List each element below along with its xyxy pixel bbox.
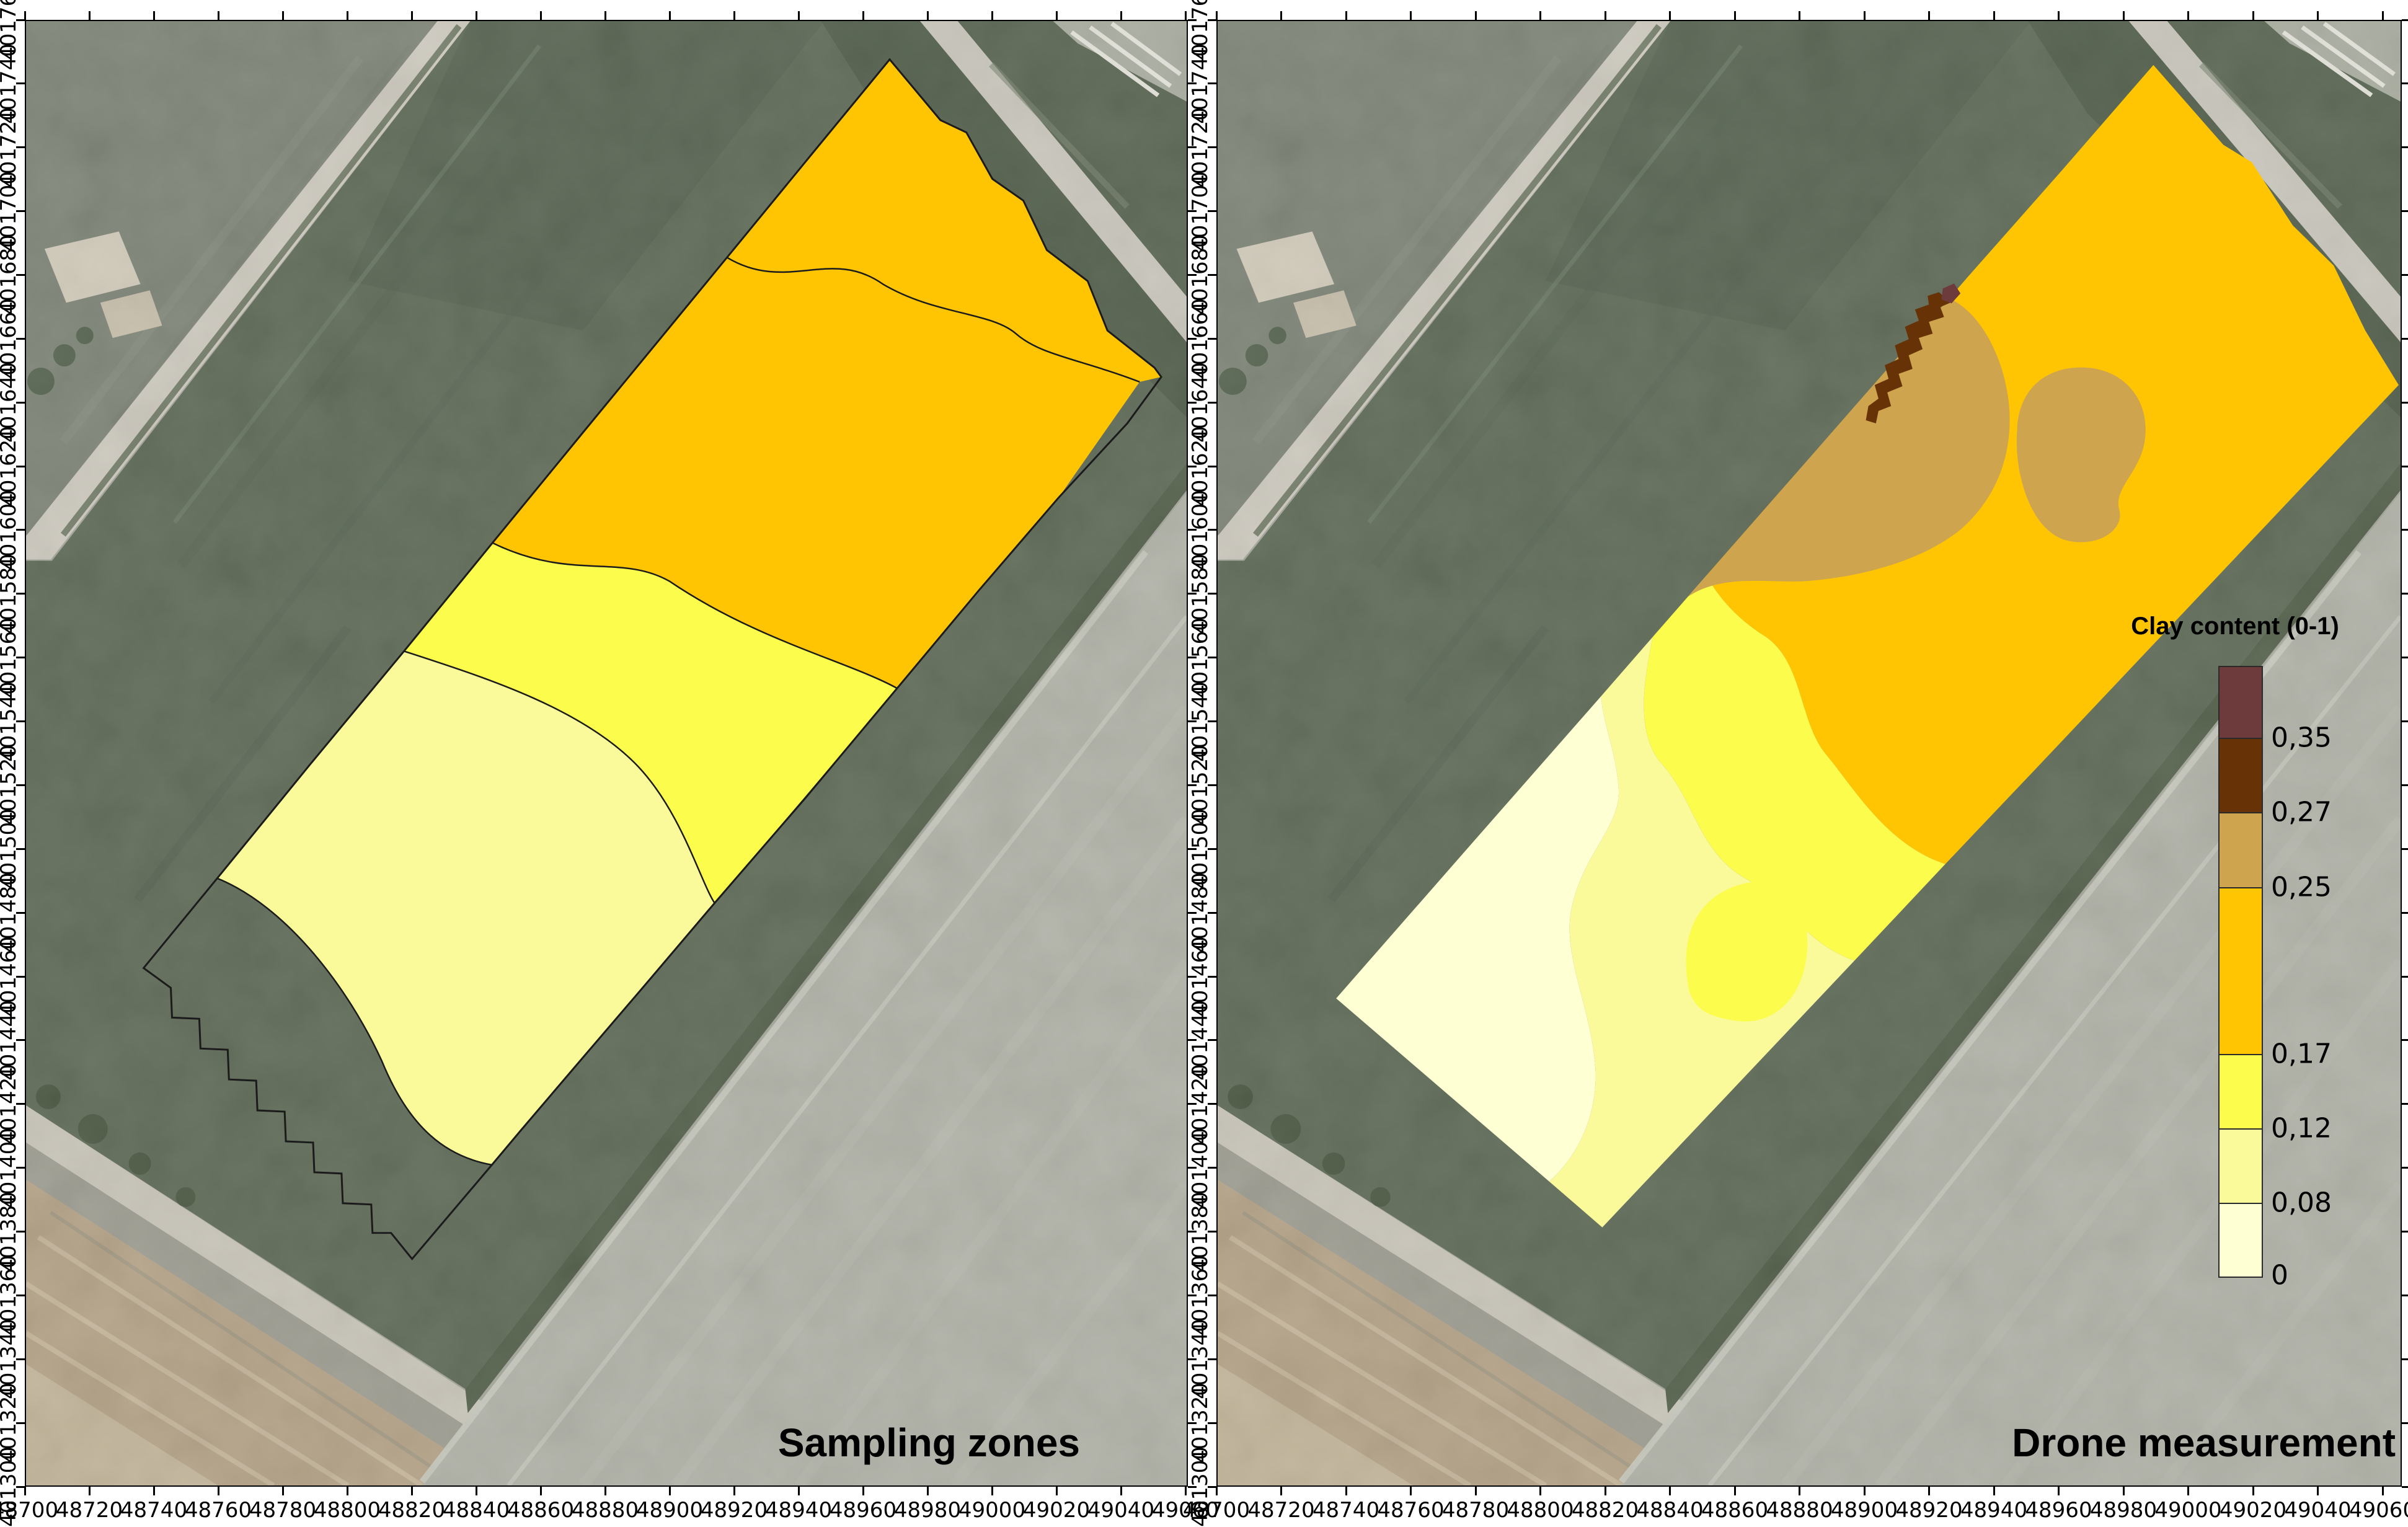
x-tick — [2123, 1487, 2125, 1495]
x-tick — [733, 1487, 735, 1495]
x-tick — [218, 1487, 219, 1495]
x-tick — [733, 11, 735, 20]
y-tick — [2402, 784, 2408, 786]
x-tick-label: 49040 — [2284, 1498, 2351, 1523]
x-tick — [927, 11, 929, 20]
sampling-zones-map — [25, 20, 1188, 1487]
x-tick — [1185, 1487, 1187, 1495]
x-tick-label: 48900 — [636, 1498, 703, 1523]
x-tick — [2058, 1487, 2060, 1495]
y-tick — [2402, 657, 2408, 658]
x-tick — [1280, 1487, 1282, 1495]
x-tick — [153, 11, 155, 20]
x-tick — [2317, 1487, 2319, 1495]
x-tick — [2123, 11, 2125, 20]
x-tick — [604, 1487, 606, 1495]
x-tick — [2058, 11, 2060, 20]
x-tick-label: 48740 — [1312, 1498, 1379, 1523]
legend-colorbar — [2218, 666, 2263, 1278]
y-tick — [2402, 1231, 2408, 1233]
x-tick — [604, 11, 606, 20]
x-tick — [1475, 11, 1477, 20]
x-tick — [476, 11, 477, 20]
x-tick — [540, 1487, 542, 1495]
legend-boundary-label: 0,27 — [2271, 797, 2332, 828]
x-tick — [1669, 1487, 1671, 1495]
x-tick — [218, 11, 219, 20]
legend-boundary-label: 0 — [2271, 1260, 2288, 1291]
x-tick — [1734, 11, 1736, 20]
x-tick — [411, 1487, 413, 1495]
x-tick — [476, 1487, 477, 1495]
x-tick — [2252, 11, 2254, 20]
legend-boundary-label: 0,35 — [2271, 722, 2332, 754]
x-tick — [153, 1487, 155, 1495]
x-tick — [1345, 11, 1347, 20]
x-tick-label: 48940 — [1960, 1498, 2027, 1523]
x-tick-label: 48720 — [56, 1498, 123, 1523]
x-tick — [1799, 1487, 1800, 1495]
x-tick-label: 48960 — [830, 1498, 896, 1523]
x-tick-label: 49000 — [958, 1498, 1025, 1523]
sampling-zones-canvas — [26, 21, 1187, 1485]
x-tick — [1799, 11, 1800, 20]
x-tick-label: 49000 — [2154, 1498, 2221, 1523]
x-tick — [347, 11, 348, 20]
x-tick — [540, 11, 542, 20]
x-tick — [282, 11, 284, 20]
y-tick — [2402, 146, 2408, 148]
x-tick — [1605, 1487, 1606, 1495]
legend-color-segment — [2220, 888, 2262, 1055]
x-tick — [1864, 11, 1866, 20]
y-tick-label: 401300 — [1188, 1446, 1213, 1527]
y-tick — [2402, 210, 2408, 212]
x-tick — [1993, 1487, 1995, 1495]
x-tick-label: 48900 — [1831, 1498, 1898, 1523]
x-tick — [2252, 1487, 2254, 1495]
legend-boundary-label: 0,12 — [2271, 1113, 2332, 1144]
x-tick — [89, 1487, 91, 1495]
legend-title: Clay content (0-1) — [2105, 613, 2365, 640]
x-tick — [669, 1487, 671, 1495]
x-tick — [1185, 11, 1187, 20]
legend-boundary-label: 0,08 — [2271, 1187, 2332, 1219]
legend-color-segment — [2220, 739, 2262, 813]
x-tick — [2382, 11, 2384, 20]
x-tick-label: 48760 — [185, 1498, 252, 1523]
x-tick — [1605, 11, 1606, 20]
x-tick — [282, 1487, 284, 1495]
right-panel-title: Drone measurement — [2012, 1420, 2396, 1466]
x-tick — [1539, 1487, 1541, 1495]
x-tick — [347, 1487, 348, 1495]
x-tick — [1120, 11, 1122, 20]
x-tick-label: 48920 — [1895, 1498, 1962, 1523]
x-tick-label: 48740 — [120, 1498, 187, 1523]
y-tick — [2402, 274, 2408, 276]
clay-content-legend: Clay content (0-1) 0,350,270,250,170,120… — [2105, 613, 2396, 640]
y-tick — [2402, 1103, 2408, 1105]
x-tick-label: 48960 — [2025, 1498, 2092, 1523]
x-tick — [1864, 1487, 1866, 1495]
clay-content-map-figure: { "panels": { "left": { "title": "Sampli… — [0, 0, 2408, 1514]
y-tick — [2402, 19, 2408, 21]
x-tick — [1669, 11, 1671, 20]
x-tick-label: 48920 — [701, 1498, 768, 1523]
x-tick — [1280, 11, 1282, 20]
x-tick — [1734, 1487, 1736, 1495]
x-tick — [669, 11, 671, 20]
x-tick — [1475, 1487, 1477, 1495]
x-tick — [24, 1487, 26, 1495]
x-tick — [862, 11, 864, 20]
x-tick — [411, 11, 413, 20]
y-tick — [2402, 848, 2408, 850]
x-tick — [798, 11, 800, 20]
x-tick — [1056, 1487, 1058, 1495]
x-tick — [2187, 1487, 2189, 1495]
x-tick-label: 49020 — [1023, 1498, 1090, 1523]
x-tick-label: 48980 — [894, 1498, 961, 1523]
x-tick-label: 49040 — [1087, 1498, 1154, 1523]
legend-boundary-label: 0,25 — [2271, 872, 2332, 903]
x-tick — [991, 1487, 993, 1495]
y-tick — [2402, 912, 2408, 914]
y-tick — [2402, 1358, 2408, 1360]
x-tick — [862, 1487, 864, 1495]
x-tick-label: 48820 — [1572, 1498, 1639, 1523]
y-tick-label: 401300 — [0, 1446, 21, 1527]
x-tick — [1993, 11, 1995, 20]
x-tick — [2187, 11, 2189, 20]
legend-color-segment — [2220, 1130, 2262, 1204]
y-tick — [2402, 402, 2408, 404]
left-panel-title: Sampling zones — [778, 1420, 1080, 1466]
y-tick — [2402, 1295, 2408, 1296]
x-tick — [991, 11, 993, 20]
x-tick-label: 48840 — [443, 1498, 510, 1523]
x-tick — [798, 1487, 800, 1495]
x-tick-label: 48780 — [249, 1498, 316, 1523]
x-tick-label: 48720 — [1247, 1498, 1314, 1523]
x-tick-label: 48860 — [507, 1498, 574, 1523]
x-tick — [1216, 1487, 1218, 1495]
y-tick — [2402, 1039, 2408, 1041]
y-tick — [2402, 976, 2408, 978]
x-tick-label: 48880 — [1766, 1498, 1833, 1523]
y-tick — [2402, 338, 2408, 340]
x-tick-label: 48800 — [314, 1498, 381, 1523]
x-tick — [1539, 11, 1541, 20]
x-tick — [927, 1487, 929, 1495]
y-tick — [2402, 1486, 2408, 1488]
x-tick — [1410, 11, 1412, 20]
legend-boundary-label: 0,17 — [2271, 1038, 2332, 1070]
y-tick — [2402, 593, 2408, 595]
x-tick — [1410, 1487, 1412, 1495]
x-tick — [1056, 11, 1058, 20]
y-tick — [2402, 720, 2408, 722]
x-tick-label: 48820 — [378, 1498, 445, 1523]
x-tick — [89, 11, 91, 20]
y-tick — [2402, 82, 2408, 84]
x-tick-label: 48940 — [765, 1498, 832, 1523]
y-tick — [2402, 466, 2408, 467]
x-tick — [1928, 11, 1930, 20]
x-tick-label: 48780 — [1442, 1498, 1509, 1523]
x-tick-label: 49060 — [2349, 1498, 2408, 1523]
legend-color-segment — [2220, 813, 2262, 888]
x-tick-label: 48760 — [1377, 1498, 1444, 1523]
x-tick — [1345, 1487, 1347, 1495]
x-tick — [2317, 11, 2319, 20]
x-tick — [1928, 1487, 1930, 1495]
x-tick-label: 48800 — [1507, 1498, 1574, 1523]
x-tick-label: 48880 — [572, 1498, 639, 1523]
x-tick-label: 49020 — [2220, 1498, 2286, 1523]
x-tick-label: 48980 — [2090, 1498, 2157, 1523]
y-tick — [2402, 1422, 2408, 1424]
y-tick — [2402, 1167, 2408, 1169]
y-tick — [2402, 529, 2408, 531]
x-tick-label: 48840 — [1636, 1498, 1703, 1523]
x-tick — [1120, 1487, 1122, 1495]
legend-color-segment — [2220, 1055, 2262, 1130]
x-tick-label: 48860 — [1701, 1498, 1768, 1523]
legend-color-segment — [2220, 667, 2262, 739]
x-tick — [2382, 1487, 2384, 1495]
legend-color-segment — [2220, 1204, 2262, 1277]
